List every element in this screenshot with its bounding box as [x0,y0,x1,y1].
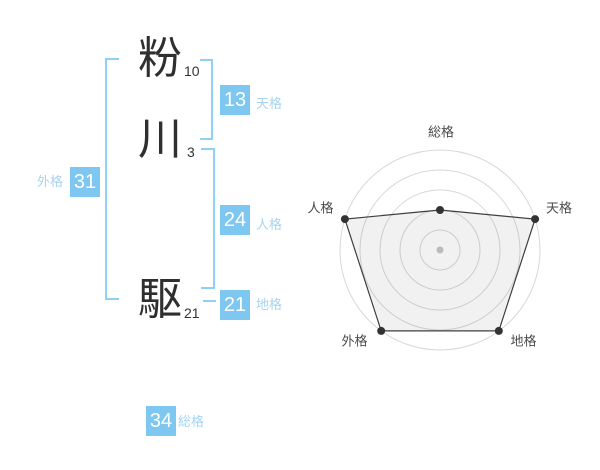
tenkaku-value-box: 13 [220,85,250,115]
gaikaku-value-box: 31 [70,167,100,197]
gaikaku-label: 外格 [37,175,63,188]
chikaku-bracket-tick [203,300,216,302]
jinkaku-value: 24 [224,209,246,231]
radar-chart: 総格 天格 地格 外格 人格 [300,100,600,370]
jinkaku-label: 人格 [256,218,282,231]
gaikaku-value: 31 [74,171,96,193]
surname-char-1-strokes: 10 [184,64,200,78]
given-char-1: 駆 [137,278,183,322]
chikaku-value-box: 21 [220,290,250,320]
chikaku-label: 地格 [256,298,282,311]
tenkaku-label: 天格 [256,97,282,110]
tenkaku-value: 13 [224,89,246,111]
jinkaku-bracket [201,148,215,289]
tenkaku-bracket [200,59,213,140]
surname-char-1: 粉 [137,37,183,81]
soukaku-label: 総格 [178,415,204,428]
radar-axis-label-chikaku: 地格 [511,334,537,349]
radar-axis-label-jinkaku: 人格 [307,201,333,216]
surname-char-2-strokes: 3 [187,145,195,159]
radar-axis-label-tenkaku: 天格 [546,201,572,216]
radar-grid-and-area [340,150,540,350]
gaikaku-bracket [105,58,119,300]
name-fortune-panel: 外格 31 粉 10 川 3 駆 21 13 天格 24 人格 21 地格 34… [0,0,600,470]
soukaku-value-box: 34 [146,406,176,436]
soukaku-value: 34 [150,410,172,432]
given-char-1-strokes: 21 [184,306,200,320]
jinkaku-value-box: 24 [220,205,250,235]
chikaku-value: 21 [224,294,246,316]
radar-axis-label-gaikaku: 外格 [342,334,368,349]
radar-axis-label-soukaku: 総格 [428,125,454,140]
surname-char-2: 川 [137,118,183,162]
